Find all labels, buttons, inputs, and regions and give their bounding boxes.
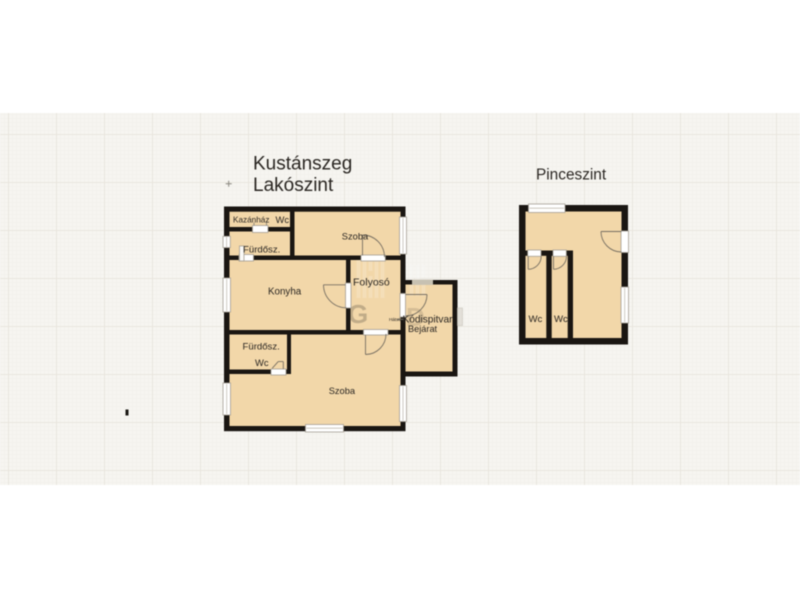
svg-text:Folyosó: Folyosó [353,277,390,289]
svg-text:Fürdősz.: Fürdősz. [243,245,280,256]
svg-text:Lakószint: Lakószint [253,175,334,196]
svg-text:Konyha: Konyha [268,287,302,298]
svg-text:Szoba: Szoba [342,232,369,242]
svg-text:Fürdősz.: Fürdősz. [243,342,280,353]
svg-text:Wc: Wc [554,314,568,325]
svg-text:Wc: Wc [276,214,290,225]
svg-text:Bejárat: Bejárat [408,324,438,334]
svg-text:Kustánszeg: Kustánszeg [253,154,352,175]
svg-text:Szoba: Szoba [329,386,356,396]
svg-text:Wc: Wc [255,357,269,368]
svg-text:Kazánház: Kazánház [233,216,269,225]
svg-text:Pinceszint: Pinceszint [536,167,607,184]
svg-text:Wc: Wc [529,314,543,325]
